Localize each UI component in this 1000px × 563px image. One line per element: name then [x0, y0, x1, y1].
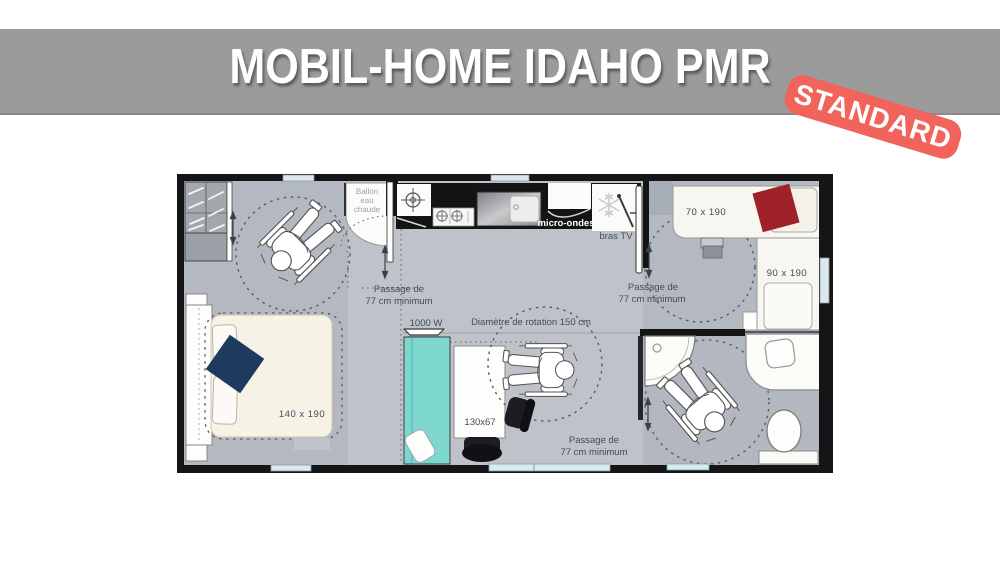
svg-text:eau: eau — [360, 196, 373, 205]
svg-text:70 x 190: 70 x 190 — [686, 207, 726, 218]
svg-text:130x67: 130x67 — [464, 417, 495, 428]
svg-text:1000 W: 1000 W — [410, 318, 443, 329]
svg-text:chaude: chaude — [354, 205, 381, 214]
svg-text:77 cm minimum: 77 cm minimum — [618, 294, 685, 305]
svg-text:140 x 190: 140 x 190 — [279, 409, 325, 420]
svg-text:Passage de: Passage de — [374, 284, 424, 295]
svg-text:77 cm minimum: 77 cm minimum — [560, 447, 627, 458]
svg-text:Diamètre de rotation 150 cm: Diamètre de rotation 150 cm — [471, 317, 591, 328]
svg-text:bras TV: bras TV — [599, 231, 633, 242]
svg-text:micro-ondes: micro-ondes — [537, 218, 594, 229]
svg-text:77 cm minimum: 77 cm minimum — [365, 296, 432, 307]
svg-text:Passage de: Passage de — [569, 435, 619, 446]
svg-text:Ballon: Ballon — [356, 187, 378, 196]
svg-text:90 x 190: 90 x 190 — [767, 268, 807, 279]
svg-text:Passage de: Passage de — [628, 282, 678, 293]
